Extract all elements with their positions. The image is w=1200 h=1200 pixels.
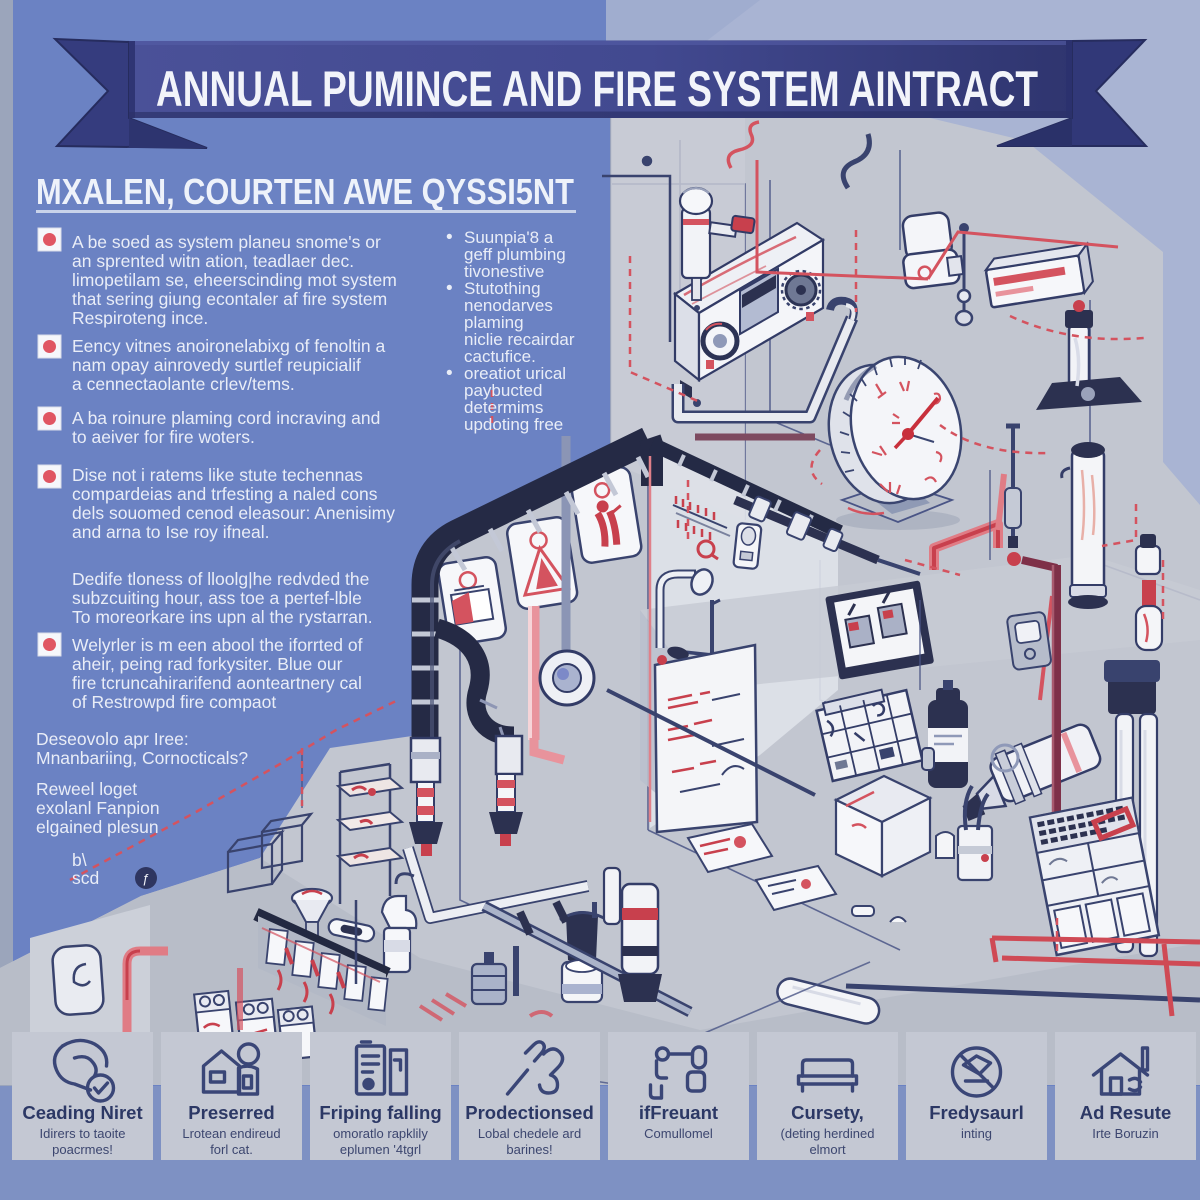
svg-text:Idirers to taoite: Idirers to taoite	[40, 1126, 126, 1141]
svg-text:Dedife tloness of lloolg|he re: Dedife tloness of lloolg|he redvded the	[72, 569, 369, 589]
svg-text:Fredysaurl: Fredysaurl	[929, 1102, 1024, 1123]
svg-text:to aeiver for fire woters.: to aeiver for fire woters.	[72, 427, 255, 447]
svg-text:Eency vitnes anoironelabixg of: Eency vitnes anoironelabixg of fenoltin …	[72, 336, 386, 356]
svg-text:ifFreuant: ifFreuant	[639, 1102, 718, 1123]
svg-text:Comullomel: Comullomel	[644, 1126, 713, 1141]
svg-text:•: •	[446, 278, 453, 299]
svg-text:Ad Resute: Ad Resute	[1080, 1102, 1172, 1123]
svg-text:Prodectionsed: Prodectionsed	[465, 1102, 594, 1123]
svg-text:Dise not i ratems like stute t: Dise not i ratems like stute techennas	[72, 465, 363, 485]
svg-text:Deseovolo apr Iree:: Deseovolo apr Iree:	[36, 729, 189, 749]
svg-text:•: •	[446, 363, 453, 384]
svg-text:Friping falling: Friping falling	[319, 1102, 441, 1123]
svg-text:Lrotean endireud: Lrotean endireud	[182, 1126, 280, 1141]
svg-text:Mnanbariing, Cornocticals?: Mnanbariing, Cornocticals?	[36, 748, 248, 768]
svg-text:Cursety,: Cursety,	[791, 1102, 864, 1123]
svg-text:updoting free: updoting free	[464, 415, 563, 434]
svg-text:forl cat.: forl cat.	[210, 1142, 253, 1157]
svg-text:•: •	[446, 227, 453, 248]
svg-text:and arna to Ise roy ifneal.: and arna to Ise roy ifneal.	[72, 522, 269, 542]
svg-text:elgained plesun: elgained plesun	[36, 817, 159, 837]
svg-text:b\: b\	[72, 850, 87, 870]
svg-text:MXALEN, COURTEN AWE QYSSI5NT: MXALEN, COURTEN AWE QYSSI5NT	[36, 171, 574, 212]
svg-text:poacrmes!: poacrmes!	[52, 1142, 113, 1157]
svg-text:compardeias and trfesting a na: compardeias and trfesting a naled cons	[72, 484, 378, 504]
svg-text:of Restrowpd fire compaot: of Restrowpd fire compaot	[72, 692, 276, 712]
svg-text:subzcuiting hour, ass toe a pe: subzcuiting hour, ass toe a pertef-lble	[72, 588, 362, 608]
svg-text:dels souomed cenod eleasour: A: dels souomed cenod eleasour: Anenisimy	[72, 503, 395, 523]
svg-text:Preserred: Preserred	[188, 1102, 274, 1123]
svg-text:ƒ: ƒ	[142, 871, 149, 886]
svg-text:Reweel loget: Reweel loget	[36, 779, 137, 799]
svg-text:eplumen '4tgrl: eplumen '4tgrl	[340, 1142, 421, 1157]
svg-text:an sprented witn ation, teadla: an sprented witn ation, teadlaer dec.	[72, 251, 354, 271]
svg-text:A ba roinure plaming cord incr: A ba roinure plaming cord incraving and	[72, 408, 380, 428]
svg-text:that sering giung econtaler af: that sering giung econtaler af fire syst…	[72, 289, 387, 309]
svg-text:Welyrler is m een abool the if: Welyrler is m een abool the iforrted of	[72, 635, 363, 655]
svg-text:Irte Boruzin: Irte Boruzin	[1092, 1126, 1158, 1141]
svg-text:elmort: elmort	[809, 1142, 846, 1157]
svg-text:To moreorkare ins upn al the r: To moreorkare ins upn al the rystarran.	[72, 607, 373, 627]
svg-text:inting: inting	[961, 1126, 992, 1141]
svg-text:aheir, peing rad forkysiter. B: aheir, peing rad forkysiter. Blue our	[72, 654, 343, 674]
svg-text:Respiroteng ince.: Respiroteng ince.	[72, 308, 208, 328]
svg-text:barines!: barines!	[506, 1142, 552, 1157]
svg-text:a cennectaolante crlev/tems.: a cennectaolante crlev/tems.	[72, 374, 295, 394]
svg-text:A be soed as system planeu sno: A be soed as system planeu snome's or	[72, 232, 381, 252]
svg-text:exolanl Fanpion: exolanl Fanpion	[36, 798, 160, 818]
svg-text:limopetilam se, eheerscinding: limopetilam se, eheerscinding mot system	[72, 270, 397, 290]
svg-text:Ceading Niret: Ceading Niret	[22, 1102, 142, 1123]
svg-text:nam opay ainrovedy surtlef reu: nam opay ainrovedy surtlef reupicialif	[72, 355, 361, 375]
svg-text:(deting herdined: (deting herdined	[781, 1126, 875, 1141]
svg-text:omoratlo rapklily: omoratlo rapklily	[333, 1126, 428, 1141]
svg-text:Lobal chedele ard: Lobal chedele ard	[478, 1126, 581, 1141]
svg-text:scd: scd	[72, 868, 99, 888]
svg-text:ANNUAL PUMINCE AND FIRE SYSTEM: ANNUAL PUMINCE AND FIRE SYSTEM AINTRACT	[156, 61, 1038, 117]
svg-text:fire tcruncahirarifend aontear: fire tcruncahirarifend aonteartnery cal	[72, 673, 362, 693]
